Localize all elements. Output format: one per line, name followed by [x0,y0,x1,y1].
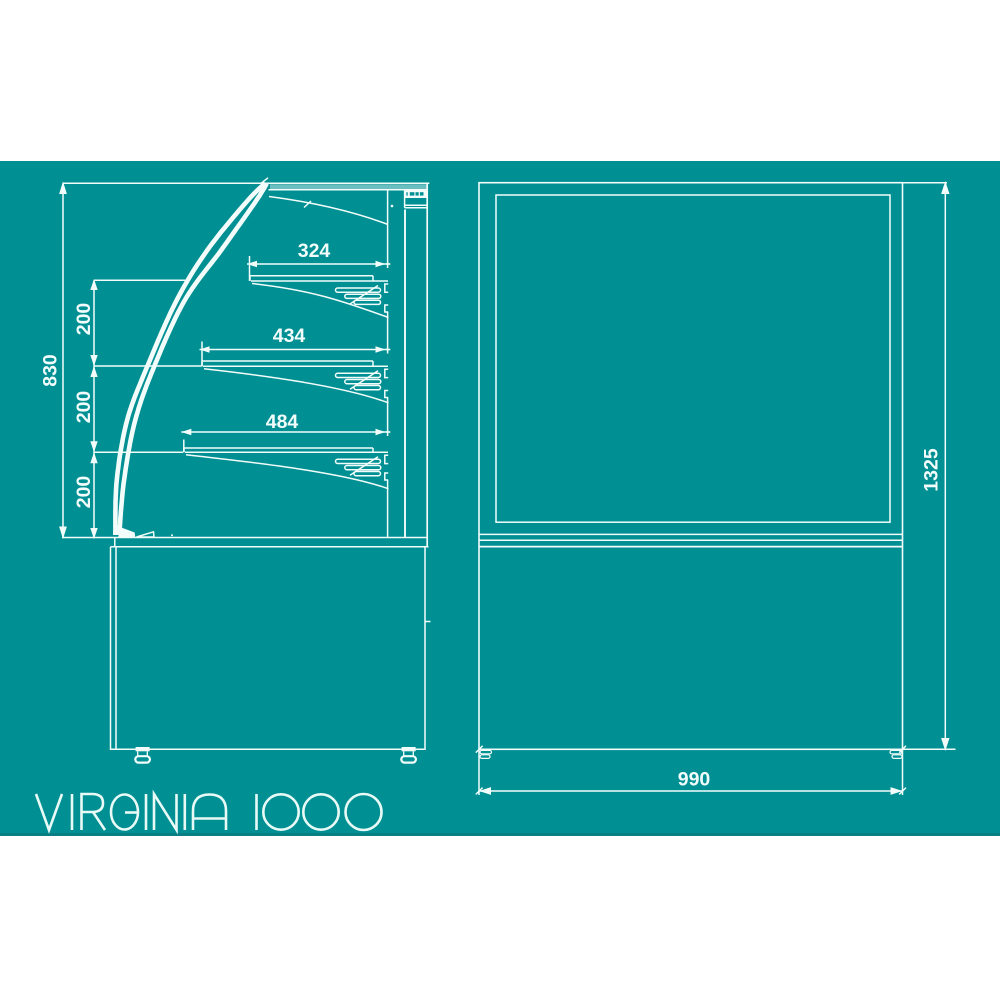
svg-text:434: 434 [273,325,306,347]
svg-text:990: 990 [678,769,711,791]
svg-text:324: 324 [298,240,331,262]
svg-text:830: 830 [39,354,61,387]
svg-text:1325: 1325 [921,448,943,492]
svg-text:200: 200 [73,476,95,509]
svg-text:200: 200 [73,303,95,336]
svg-text:200: 200 [73,391,95,424]
svg-text:484: 484 [266,411,299,433]
